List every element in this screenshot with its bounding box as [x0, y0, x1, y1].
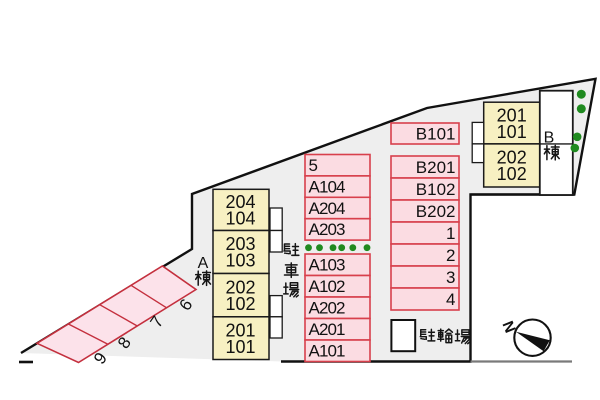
- svg-text:B201: B201: [416, 158, 456, 177]
- svg-text:A: A: [198, 255, 209, 272]
- svg-text:102: 102: [225, 294, 255, 314]
- svg-text:A203: A203: [309, 220, 346, 239]
- svg-text:104: 104: [225, 209, 255, 229]
- svg-text:B: B: [544, 130, 555, 147]
- svg-text:B202: B202: [416, 202, 456, 221]
- svg-text:2: 2: [446, 246, 455, 265]
- svg-text:A104: A104: [309, 177, 346, 196]
- svg-text:B101: B101: [416, 124, 456, 143]
- svg-text:A101: A101: [309, 342, 346, 361]
- svg-text:A102: A102: [309, 277, 346, 296]
- svg-text:A201: A201: [309, 320, 346, 339]
- svg-text:A204: A204: [309, 199, 346, 218]
- svg-text:103: 103: [225, 251, 255, 271]
- svg-text:B102: B102: [416, 180, 456, 199]
- svg-text:101: 101: [225, 337, 255, 357]
- svg-text:4: 4: [446, 290, 455, 309]
- svg-text:5: 5: [309, 156, 318, 175]
- svg-text:A103: A103: [309, 256, 346, 275]
- svg-text:101: 101: [497, 122, 527, 142]
- svg-text:A202: A202: [309, 299, 346, 318]
- svg-text:102: 102: [497, 164, 527, 184]
- svg-text:3: 3: [446, 268, 455, 287]
- svg-text:1: 1: [446, 224, 455, 243]
